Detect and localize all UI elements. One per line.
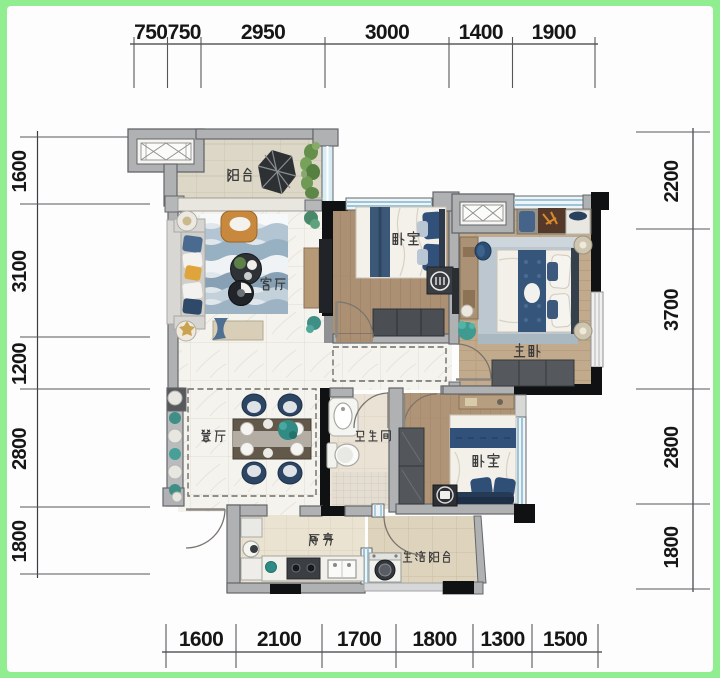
svg-text:750: 750 [168, 21, 201, 44]
svg-text:2800: 2800 [661, 426, 683, 469]
svg-text:2200: 2200 [661, 160, 683, 203]
svg-text:3000: 3000 [365, 21, 409, 44]
svg-text:1800: 1800 [412, 628, 456, 651]
svg-text:1600: 1600 [179, 628, 223, 651]
svg-text:1600: 1600 [9, 150, 31, 193]
svg-text:1300: 1300 [480, 628, 524, 651]
svg-text:1200: 1200 [9, 342, 31, 385]
svg-text:3100: 3100 [9, 250, 31, 293]
svg-text:1700: 1700 [337, 628, 381, 651]
svg-text:1900: 1900 [532, 21, 576, 44]
svg-text:3700: 3700 [661, 288, 683, 331]
svg-text:750: 750 [134, 21, 167, 44]
svg-text:2950: 2950 [241, 21, 285, 44]
svg-text:1500: 1500 [543, 628, 587, 651]
svg-text:1800: 1800 [661, 526, 683, 569]
svg-text:1800: 1800 [9, 520, 31, 563]
svg-text:2100: 2100 [257, 628, 301, 651]
svg-text:2800: 2800 [9, 427, 31, 470]
svg-text:1400: 1400 [459, 21, 503, 44]
